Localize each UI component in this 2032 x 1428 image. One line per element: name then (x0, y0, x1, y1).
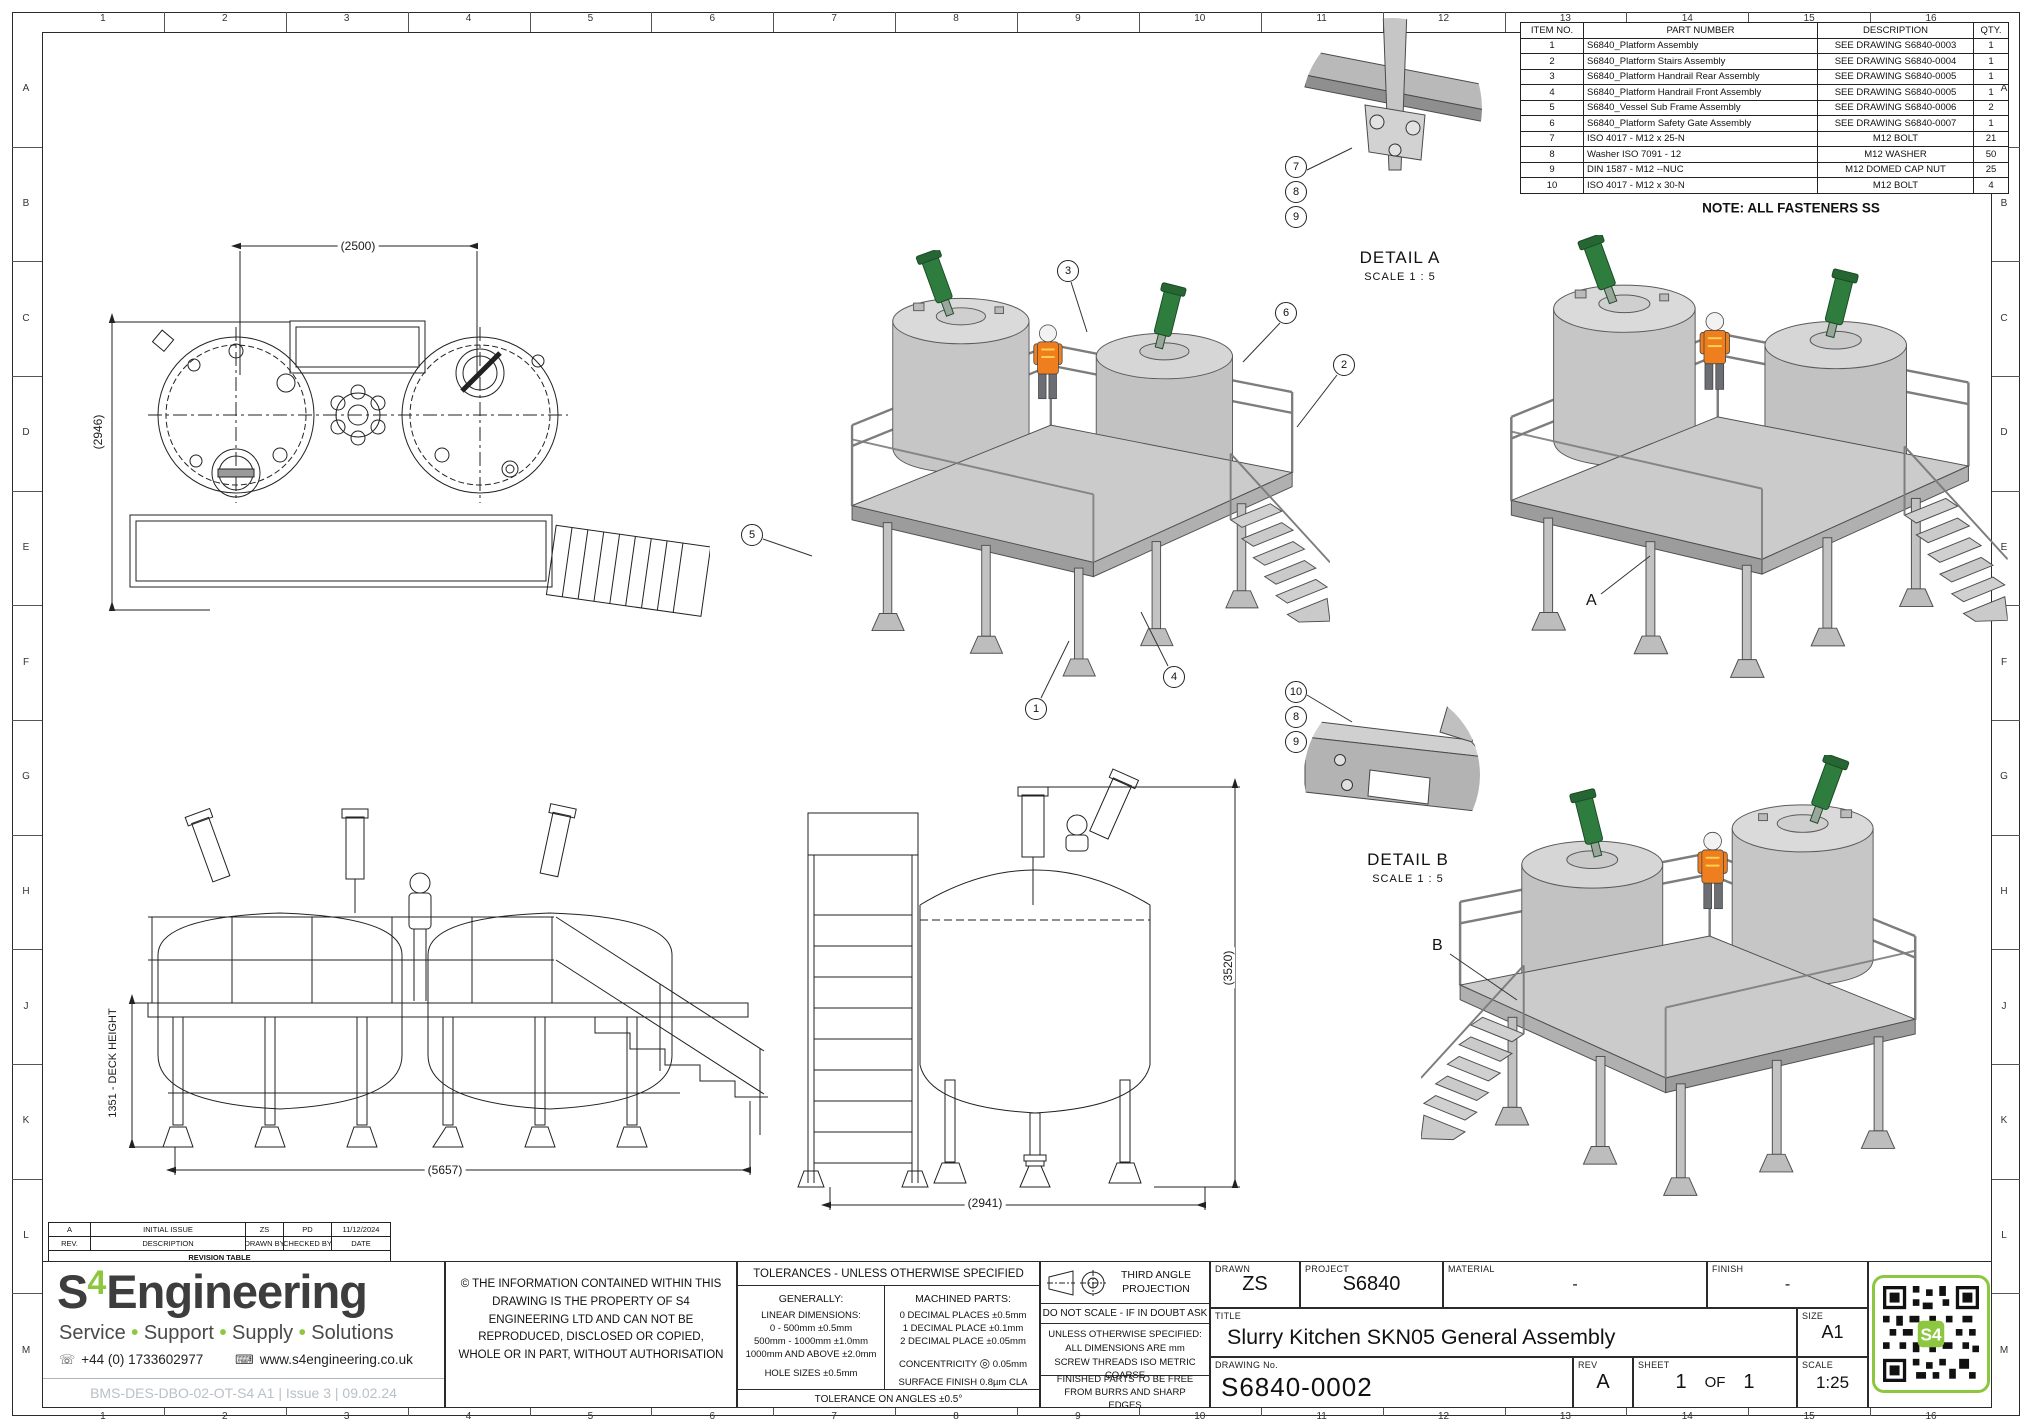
sheet-of: OF (1705, 1374, 1726, 1391)
balloon-item-3: 3 (1057, 260, 1079, 282)
rev-cell: ZS (246, 1223, 284, 1237)
drawing-title: Slurry Kitchen SKN05 General Assembly (1227, 1325, 1615, 1350)
brand-contact: ☏+44 (0) 1733602977 ⌨www.s4engineering.c… (59, 1352, 413, 1368)
grid-ref-label: K (16, 1114, 36, 1128)
section-label-b: B (1432, 937, 1443, 955)
grid-ref-label: 1 (93, 1410, 113, 1424)
grid-ref-label: 10 (1190, 12, 1210, 26)
burrs-note: FINISHED PARTS TO BE FREE FROM BURRS AND… (1041, 1376, 1209, 1409)
balloon-item-10: 10 (1285, 681, 1307, 703)
fasteners-note: NOTE: ALL FASTENERS SS (1702, 201, 1880, 216)
bom-cell: 1 (1974, 116, 2009, 132)
qr-cell: S4 (1868, 1261, 1992, 1408)
machined-title: MACHINED PARTS: (885, 1292, 1041, 1306)
drawing-sheet: { "sheet": { "grid_cols": ["1","2","3","… (0, 0, 2032, 1428)
brand-phone: +44 (0) 1733602977 (81, 1352, 203, 1367)
dim-elevation-height: (3520) (1221, 948, 1235, 989)
detail-b-label: DETAIL B (1367, 850, 1449, 870)
bom-cell: 2 (1974, 101, 2009, 117)
bom-cell: 2 (1521, 54, 1584, 70)
document-reference: BMS-DES-DBO-02-OT-S4 A1 | Issue 3 | 09.0… (43, 1378, 444, 1407)
balloon-item-7: 7 (1285, 156, 1307, 178)
tolerances-angles: TOLERANCE ON ANGLES ±0.5° (738, 1389, 1039, 1409)
grid-ref-label: 6 (702, 1410, 722, 1424)
grid-ref-label: 7 (824, 1410, 844, 1424)
bom-header-desc: DESCRIPTION (1818, 23, 1974, 39)
grid-ref-label: 13 (1555, 12, 1575, 26)
rev-header: DRAWN BY (246, 1237, 284, 1251)
bom-cell: 4 (1521, 85, 1584, 101)
balloon-item-9b: 9 (1285, 731, 1307, 753)
view-iso-right (1455, 235, 2010, 697)
dim-top-height: (2946) (91, 412, 105, 453)
tagline-word: Service (59, 1322, 144, 1344)
revision-table: A INITIAL ISSUE ZS PD 11/12/2024 REV. DE… (48, 1222, 391, 1265)
grid-ref-label: 11 (1312, 1410, 1332, 1424)
third-angle-row: THIRD ANGLE PROJECTION (1041, 1262, 1209, 1304)
bom-cell: SEE DRAWING S6840-0006 (1818, 101, 1974, 117)
material-field: MATERIAL - (1443, 1261, 1707, 1308)
tagline-word: Solutions (311, 1322, 393, 1344)
grid-ref-label: D (16, 426, 36, 440)
drawn-field: DRAWN ZS (1210, 1261, 1300, 1308)
grid-ref-label: 12 (1434, 1410, 1454, 1424)
grid-ref-label: H (1994, 885, 2014, 899)
grid-ref-label: 9 (1068, 12, 1088, 26)
bom-cell: S6840_Platform Stairs Assembly (1584, 54, 1818, 70)
qr-code: S4 (1872, 1275, 1990, 1393)
detail-a-view (1295, 10, 1495, 210)
unless-line: ALL DIMENSIONS ARE mm (1041, 1342, 1209, 1356)
dim-front-width: (5657) (425, 1163, 466, 1177)
grid-ref-label: G (1994, 770, 2014, 784)
grid-ref-label: A (1994, 82, 2014, 96)
rev-label: REV (1578, 1360, 1597, 1370)
tolerances-block: TOLERANCES - UNLESS OTHERWISE SPECIFIED … (737, 1261, 1040, 1408)
dim-front-deck-height: 1351 - DECK HEIGHT (107, 1005, 119, 1120)
bom-cell: S6840_Platform Assembly (1584, 39, 1818, 55)
bom-cell: M12 WASHER (1818, 147, 1974, 163)
size-field: SIZE A1 (1797, 1308, 1868, 1357)
grid-ref-label: 3 (337, 1410, 357, 1424)
grid-ref-label: 8 (946, 12, 966, 26)
rev-header: DATE (332, 1237, 391, 1251)
bom-cell: SEE DRAWING S6840-0005 (1818, 70, 1974, 86)
grid-ref-label: A (16, 82, 36, 96)
grid-ref-label: F (1994, 656, 2014, 670)
bom-header-qty: QTY. (1974, 23, 2009, 39)
bom-cell: 4 (1974, 178, 2009, 194)
projection-block: THIRD ANGLE PROJECTION DO NOT SCALE - IF… (1040, 1261, 1210, 1408)
bom-cell: M12 DOMED CAP NUT (1818, 163, 1974, 179)
bom-cell: 3 (1521, 70, 1584, 86)
unless-line: UNLESS OTHERWISE SPECIFIED: (1041, 1328, 1209, 1342)
detail-a-title: DETAIL A SCALE 1 : 5 (1360, 248, 1441, 283)
grid-ref-label: B (16, 197, 36, 211)
third-angle-label: THIRD ANGLE PROJECTION (1109, 1269, 1203, 1296)
bom-cell: ISO 4017 - M12 x 25-N (1584, 132, 1818, 148)
balloon-item-8b: 8 (1285, 706, 1307, 728)
detail-b-view (1300, 682, 1490, 872)
bom-cell: 50 (1974, 147, 2009, 163)
finish-field: FINISH - (1707, 1261, 1868, 1308)
grid-ref-label: H (16, 885, 36, 899)
bom-cell: SEE DRAWING S6840-0005 (1818, 85, 1974, 101)
machined-line: 0 DECIMAL PLACES ±0.5mm (885, 1310, 1041, 1323)
bom-cell: 10 (1521, 178, 1584, 194)
scale-field: SCALE 1:25 (1797, 1357, 1868, 1408)
grid-ref-label: 1 (93, 12, 113, 26)
bom-cell: S6840_Vessel Sub Frame Assembly (1584, 101, 1818, 117)
grid-ref-label: J (16, 1000, 36, 1014)
balloon-item-4: 4 (1163, 666, 1185, 688)
grid-ref-label: M (16, 1344, 36, 1358)
grid-ref-label: B (1994, 197, 2014, 211)
brand-s: S (57, 1265, 87, 1318)
bom-cell: SEE DRAWING S6840-0007 (1818, 116, 1974, 132)
hole-sizes: HOLE SIZES ±0.5mm (738, 1368, 884, 1381)
grid-ref-label: 9 (1068, 1410, 1088, 1424)
bom-cell: 7 (1521, 132, 1584, 148)
unless-otherwise: UNLESS OTHERWISE SPECIFIED: ALL DIMENSIO… (1041, 1324, 1209, 1376)
view-iso-main (800, 250, 1330, 695)
machined-line: 2 DECIMAL PLACE ±0.05mm (885, 1336, 1041, 1349)
grid-ref-label: 16 (1921, 1410, 1941, 1424)
bom-cell: 25 (1974, 163, 2009, 179)
tagline-word: Support (144, 1322, 232, 1344)
copyright-block: © THE INFORMATION CONTAINED WITHIN THIS … (445, 1261, 737, 1408)
section-label-a: A (1586, 592, 1597, 610)
linear-title: LINEAR DIMENSIONS: (738, 1310, 884, 1323)
concentricity-value: 0.05mm (993, 1359, 1027, 1370)
detail-a-scale: SCALE 1 : 5 (1360, 271, 1441, 283)
scale-label: SCALE (1802, 1360, 1833, 1370)
sheet-label: SHEET (1638, 1360, 1670, 1370)
material-label: MATERIAL (1448, 1264, 1495, 1274)
bom-cell: S6840_Platform Handrail Front Assembly (1584, 85, 1818, 101)
concentricity-icon: ◎ (980, 1356, 990, 1370)
grid-ref-label: 4 (459, 12, 479, 26)
grid-ref-label: 15 (1799, 12, 1819, 26)
brand-tagline: ServiceSupportSupplySolutions (59, 1322, 394, 1345)
qr-pattern: S4 (1883, 1286, 1979, 1382)
tolerances-generally: GENERALLY: LINEAR DIMENSIONS: 0 - 500mm … (738, 1286, 885, 1389)
rev-header: DESCRIPTION (91, 1237, 246, 1251)
bom-cell: 1 (1974, 54, 2009, 70)
brand-rest: Engineering (106, 1265, 367, 1318)
copyright-text: © THE INFORMATION CONTAINED WITHIN THIS … (446, 1262, 736, 1379)
bom-cell: SEE DRAWING S6840-0003 (1818, 39, 1974, 55)
grid-ref-label: 5 (580, 12, 600, 26)
grid-ref-label: 6 (702, 12, 722, 26)
brand-4: 4 (87, 1264, 106, 1302)
grid-ref-label: 14 (1677, 1410, 1697, 1424)
grid-ref-label: 14 (1677, 12, 1697, 26)
grid-ref-label: 2 (215, 12, 235, 26)
linear-line: 500mm - 1000mm ±1.0mm (738, 1336, 884, 1349)
drawing-no-label: DRAWING No. (1215, 1360, 1278, 1370)
grid-ref-label: 8 (946, 1410, 966, 1424)
bom-table: ITEM NO. PART NUMBER DESCRIPTION QTY. 1S… (1520, 22, 2009, 194)
finish-label: FINISH (1712, 1264, 1743, 1274)
bom-cell: 8 (1521, 147, 1584, 163)
bom-cell: DIN 1587 - M12 --NUC (1584, 163, 1818, 179)
grid-ref-label: E (1994, 541, 2014, 555)
balloon-item-2: 2 (1333, 354, 1355, 376)
bom-cell: Washer ISO 7091 - 12 (1584, 147, 1818, 163)
grid-ref-label: F (16, 656, 36, 670)
bom-cell: S6840_Platform Safety Gate Assembly (1584, 116, 1818, 132)
grid-ref-label: 10 (1190, 1410, 1210, 1424)
drawing-no-value: S6840-0002 (1221, 1372, 1373, 1403)
grid-ref-label: G (16, 770, 36, 784)
bom-cell: ISO 4017 - M12 x 30-N (1584, 178, 1818, 194)
generally-title: GENERALLY: (738, 1292, 884, 1306)
title-label: TITLE (1215, 1311, 1241, 1321)
detail-b-title: DETAIL B SCALE 1 : 5 (1367, 850, 1449, 885)
bom-cell: M12 BOLT (1818, 178, 1974, 194)
bom-cell: 9 (1521, 163, 1584, 179)
logo-block: S4Engineering ServiceSupportSupplySoluti… (42, 1261, 445, 1408)
grid-ref-label: L (16, 1229, 36, 1243)
title-field: TITLE Slurry Kitchen SKN05 General Assem… (1210, 1308, 1797, 1357)
view-front-elevation (120, 755, 780, 1185)
brand-logo: S4Engineering (57, 1264, 367, 1319)
grid-ref-label: C (16, 312, 36, 326)
bom-cell: 1 (1521, 39, 1584, 55)
grid-ref-label: 13 (1555, 1410, 1575, 1424)
drawing-no-field: DRAWING No. S6840-0002 (1210, 1357, 1573, 1408)
grid-ref-label: E (16, 541, 36, 555)
balloon-item-9: 9 (1285, 206, 1307, 228)
phone-icon: ☏ (59, 1352, 75, 1367)
grid-ref-label: 15 (1799, 1410, 1819, 1424)
rev-cell: INITIAL ISSUE (91, 1223, 246, 1237)
grid-ref-label: L (1994, 1229, 2014, 1243)
computer-icon: ⌨ (235, 1352, 254, 1367)
balloon-item-6: 6 (1275, 302, 1297, 324)
concentricity-label: CONCENTRICITY (899, 1359, 977, 1370)
dim-elevation-width: (2941) (965, 1196, 1006, 1210)
sheet-field: SHEET 1 OF 1 (1633, 1357, 1797, 1408)
grid-ref-label: 7 (824, 12, 844, 26)
drawn-label: DRAWN (1215, 1264, 1250, 1274)
grid-ref-label: 12 (1434, 12, 1454, 26)
bom-cell: 1 (1974, 39, 2009, 55)
balloon-item-1: 1 (1025, 698, 1047, 720)
bom-cell: S6840_Platform Handrail Rear Assembly (1584, 70, 1818, 86)
bom-cell: 21 (1974, 132, 2009, 148)
grid-ref-label: 3 (337, 12, 357, 26)
third-angle-symbol (1047, 1268, 1109, 1298)
grid-ref-label: 5 (580, 1410, 600, 1424)
linear-line: 1000mm AND ABOVE ±2.0mm (738, 1349, 884, 1362)
grid-ref-label: K (1994, 1114, 2014, 1128)
tagline-word: Supply (232, 1322, 311, 1344)
detail-a-label: DETAIL A (1360, 248, 1441, 268)
rev-header: REV. (49, 1237, 91, 1251)
project-field: PROJECT S6840 (1300, 1261, 1443, 1308)
balloon-item-5: 5 (741, 524, 763, 546)
grid-ref-label: C (1994, 312, 2014, 326)
bom-cell: 5 (1521, 101, 1584, 117)
view-side-elevation (790, 735, 1255, 1220)
bom-cell: SEE DRAWING S6840-0004 (1818, 54, 1974, 70)
do-not-scale: DO NOT SCALE - IF IN DOUBT ASK (1041, 1304, 1209, 1324)
brand-website[interactable]: www.s4engineering.co.uk (260, 1352, 413, 1367)
grid-ref-label: M (1994, 1344, 2014, 1358)
rev-cell: A (49, 1223, 91, 1237)
grid-ref-label: D (1994, 426, 2014, 440)
grid-ref-label: J (1994, 1000, 2014, 1014)
tolerances-machined: MACHINED PARTS: 0 DECIMAL PLACES ±0.5mm … (885, 1286, 1041, 1389)
dim-top-width: (2500) (338, 239, 379, 253)
grid-ref-label: 4 (459, 1410, 479, 1424)
rev-field: REV A (1573, 1357, 1633, 1408)
size-label: SIZE (1802, 1311, 1823, 1321)
bom-cell: 6 (1521, 116, 1584, 132)
view-top-plan (90, 225, 710, 645)
qr-center-label: S4 (1920, 1324, 1941, 1344)
sheet-num: 1 (1675, 1371, 1686, 1394)
grid-ref-label: 2 (215, 1410, 235, 1424)
sheet-total: 1 (1743, 1371, 1754, 1394)
grid-ref-label: 11 (1312, 12, 1332, 26)
rev-cell: PD (284, 1223, 332, 1237)
grid-ref-label: 16 (1921, 12, 1941, 26)
rev-cell: 11/12/2024 (332, 1223, 391, 1237)
linear-line: 0 - 500mm ±0.5mm (738, 1323, 884, 1336)
bom-header-part: PART NUMBER (1584, 23, 1818, 39)
tolerances-title: TOLERANCES - UNLESS OTHERWISE SPECIFIED (738, 1262, 1039, 1286)
rev-header: CHECKED BY (284, 1237, 332, 1251)
detail-b-scale: SCALE 1 : 5 (1367, 873, 1449, 885)
project-label: PROJECT (1305, 1264, 1349, 1274)
bom-cell: M12 BOLT (1818, 132, 1974, 148)
machined-line: 1 DECIMAL PLACE ±0.1mm (885, 1323, 1041, 1336)
balloon-item-8: 8 (1285, 181, 1307, 203)
